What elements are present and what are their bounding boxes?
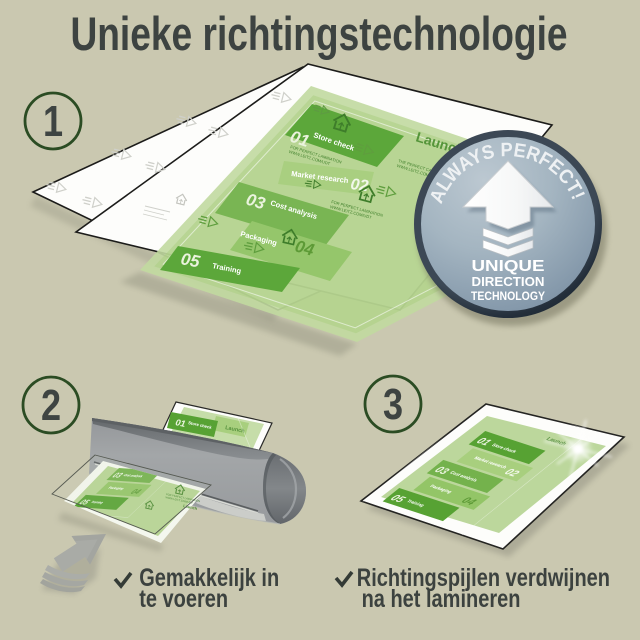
svg-text:te voeren: te voeren [139, 585, 228, 613]
svg-text:Unieke richtingstechnologie: Unieke richtingstechnologie [70, 8, 567, 60]
svg-text:3: 3 [383, 380, 403, 429]
svg-text:2: 2 [41, 381, 61, 430]
svg-text:DIRECTION: DIRECTION [472, 274, 545, 289]
svg-text:UNIQUE: UNIQUE [472, 258, 545, 275]
svg-text:01: 01 [175, 417, 187, 429]
svg-text:1: 1 [43, 97, 63, 146]
svg-text:na het lamineren: na het lamineren [362, 585, 521, 613]
svg-text:TECHNOLOGY: TECHNOLOGY [471, 289, 545, 303]
